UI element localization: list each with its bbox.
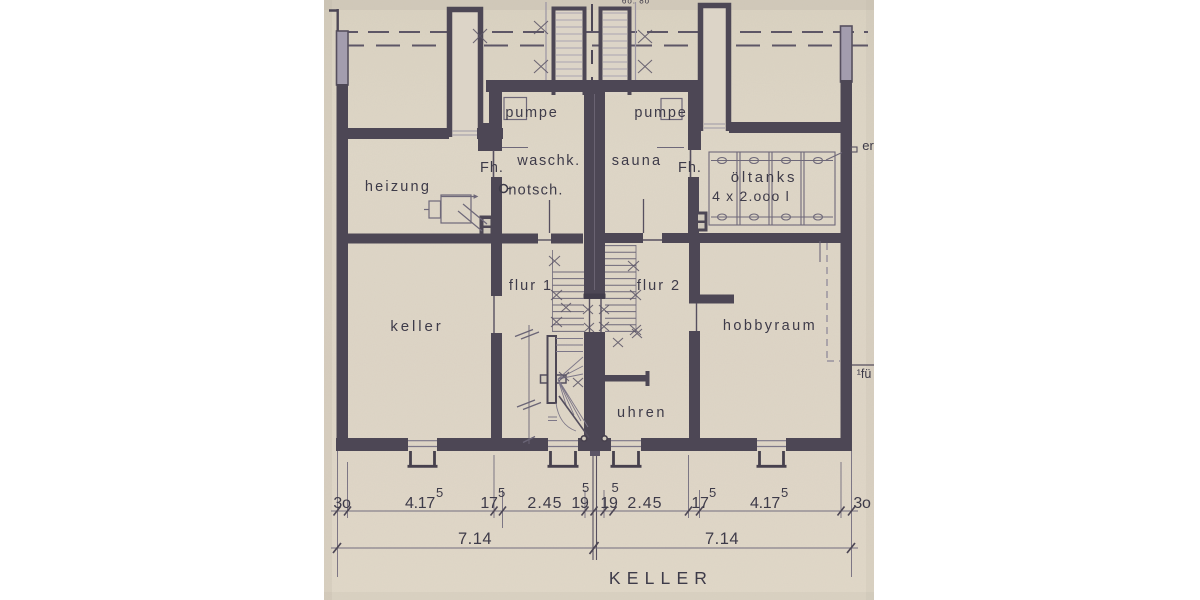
svg-text:4.17: 4.17: [405, 495, 435, 512]
svg-text:flur 2: flur 2: [637, 278, 681, 294]
svg-text:KELLER: KELLER: [609, 568, 713, 588]
svg-text:3o: 3o: [853, 495, 871, 512]
svg-text:öltanks: öltanks: [731, 169, 797, 186]
svg-text:2.45: 2.45: [527, 495, 562, 512]
svg-text:5: 5: [709, 485, 716, 500]
svg-text:¹fü: ¹fü: [857, 367, 872, 381]
svg-text:17: 17: [480, 495, 498, 512]
svg-text:5: 5: [498, 485, 505, 500]
svg-text:Fh.: Fh.: [678, 160, 702, 176]
svg-text:5: 5: [436, 485, 443, 500]
svg-text:19: 19: [600, 495, 618, 512]
svg-text:heizung: heizung: [365, 179, 431, 195]
svg-text:4.17: 4.17: [750, 495, 780, 512]
svg-text:pumpe: pumpe: [634, 105, 687, 121]
svg-text:5: 5: [582, 480, 589, 495]
svg-text:5: 5: [781, 485, 788, 500]
svg-text:uhren: uhren: [617, 405, 667, 421]
svg-text:keller: keller: [390, 318, 443, 335]
svg-text:7.14: 7.14: [705, 530, 739, 548]
svg-text:19: 19: [571, 495, 589, 512]
svg-text:17: 17: [691, 495, 709, 512]
svg-text:notsch.: notsch.: [508, 183, 563, 199]
svg-text:er: er: [862, 138, 874, 153]
svg-text:2.45: 2.45: [627, 495, 662, 512]
svg-text:sauna: sauna: [612, 153, 663, 169]
svg-text:4 x 2.ooo l: 4 x 2.ooo l: [712, 188, 790, 204]
svg-text:pumpe: pumpe: [505, 105, 558, 121]
svg-text:6o. 8o: 6o. 8o: [622, 0, 650, 6]
svg-text:5: 5: [612, 480, 619, 495]
svg-text:3o: 3o: [333, 495, 351, 512]
svg-text:flur 1: flur 1: [509, 278, 553, 294]
svg-text:waschk.: waschk.: [516, 153, 581, 169]
svg-text:Fh.: Fh.: [480, 160, 504, 176]
svg-text:7.14: 7.14: [458, 530, 492, 548]
svg-text:hobbyraum: hobbyraum: [723, 318, 817, 334]
